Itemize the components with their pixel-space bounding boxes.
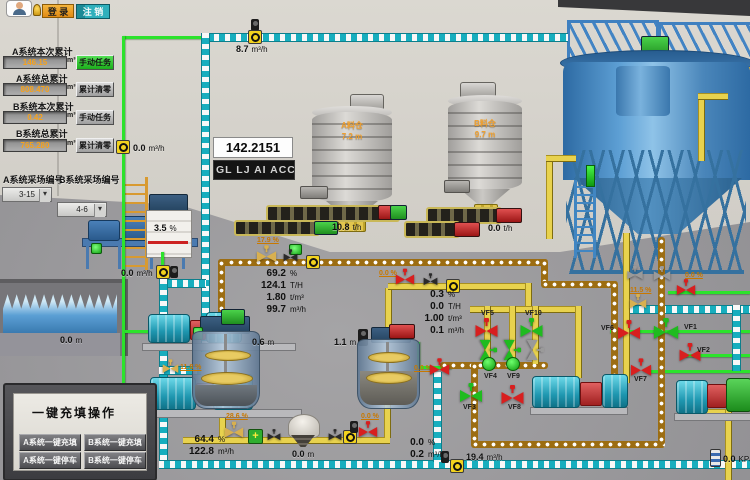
silo-b-level-unit: m xyxy=(488,130,495,139)
discharge-b-conc-unit: % xyxy=(428,438,435,447)
a-concentration-unit: % xyxy=(290,269,297,278)
a-flow-unit: m³/h xyxy=(290,305,306,314)
conveyor-b-value: 0.0 xyxy=(488,223,501,233)
vf10-valve[interactable] xyxy=(519,318,544,338)
screw-conveyor-b2 xyxy=(404,221,460,238)
mix2-out-valve[interactable] xyxy=(358,421,378,438)
pipe-yellow-mix2-out xyxy=(384,404,391,438)
mix2-out-valve-pct: 0.0 % xyxy=(361,413,379,420)
block-a-row1: 69.2% xyxy=(250,268,306,280)
b-flow: 0.1 xyxy=(408,325,444,336)
top-flowmeter-icon xyxy=(248,30,262,44)
b-total-unit: m³ xyxy=(67,140,76,147)
top-flow-value: 8.7 xyxy=(236,44,249,54)
mix-tank-1 xyxy=(192,331,260,409)
hopper-level-value: 0.0 xyxy=(292,449,305,459)
manual-valve-6[interactable] xyxy=(652,266,672,281)
mix2-feed-valve[interactable] xyxy=(395,268,415,286)
pipe-yellow-right-top xyxy=(698,93,728,100)
pipe-cyan-left-riser xyxy=(201,33,210,352)
a-batch-field[interactable]: 146.15 xyxy=(3,56,67,69)
discharge-b-row2: 0.2m³/h xyxy=(388,449,444,461)
vf2-label: VF2 xyxy=(697,347,710,354)
discharge-b-row1: 0.0% xyxy=(388,437,444,449)
mix2-propeller-lower xyxy=(366,372,412,384)
marquee-display: GL LJ AI ACC xyxy=(213,160,295,180)
vf5-label: VF5 xyxy=(481,310,494,317)
b-tonnage: 0.0 xyxy=(408,301,444,312)
bottom-flow-label: 19.4m³/h xyxy=(466,452,503,462)
silo-a-label: A料仓 7.2 m xyxy=(318,120,386,142)
vf9-label: VF9 xyxy=(507,373,520,380)
manual-valve-1[interactable] xyxy=(283,249,298,262)
conveyor-a-unit: t/h xyxy=(353,223,362,232)
wall-flow-value: 0.0 xyxy=(133,143,146,153)
silo-b-level: 9.7 m xyxy=(452,129,518,140)
stope-a-label: A系统采场编号 xyxy=(3,173,64,186)
thickener-center-column xyxy=(616,66,670,116)
a-density-unit: t/m³ xyxy=(290,293,304,302)
stope-a-select[interactable]: 3-15 xyxy=(2,187,52,202)
silo-b-label: B料仓 9.7 m xyxy=(452,118,518,140)
thickener-valve[interactable] xyxy=(629,294,647,309)
flush-valve[interactable] xyxy=(162,358,179,375)
b-total-field[interactable]: 765.280 xyxy=(3,139,67,152)
hmi-screen: 3.5% A料仓 7.2 m B料仓 9.7 m xyxy=(0,0,750,480)
vf4-flange xyxy=(482,357,496,371)
additive-tank-level-value: 3.5 xyxy=(154,223,167,233)
station-flowmeter-icon xyxy=(156,265,170,279)
pool-level-unit: m xyxy=(76,336,83,345)
silo-a-level-transmitter xyxy=(300,186,328,199)
pool-level-value: 0.0 xyxy=(60,335,73,345)
pipe-green-left-riser xyxy=(122,36,125,396)
station-flow-value: 0.0 xyxy=(121,268,134,278)
conveyor-a-value: 10.8 xyxy=(332,222,350,232)
block-a-row4: 99.7m³/h xyxy=(250,304,306,316)
vf6-label: VF6 xyxy=(601,325,614,332)
a-clear-total-button[interactable]: 累计清零 xyxy=(76,82,114,97)
tank-level-line xyxy=(148,241,188,244)
fill-hopper-dome xyxy=(288,414,320,438)
feed-valve-pct: 17.9 % xyxy=(257,237,279,244)
silo-b-name: B料仓 xyxy=(452,118,518,129)
density-block-a: 69.2% 124.1T/H 1.80t/m³ 99.7m³/h xyxy=(250,268,306,316)
a-tonnage-unit: T/H xyxy=(290,281,303,290)
b-batch-field[interactable]: 0.42 xyxy=(3,111,67,124)
login-button[interactable]: 登 录 xyxy=(42,4,74,18)
block-b-row1: 0.3% xyxy=(408,289,464,301)
wall-corner xyxy=(57,0,59,196)
vf7-label: VF7 xyxy=(634,376,647,383)
vf4-label: VF4 xyxy=(484,373,497,380)
conveyor-a1-motor xyxy=(390,205,407,220)
ceiling-strip xyxy=(0,0,750,20)
a-total-unit: m³ xyxy=(67,84,76,91)
pump-run-lamp xyxy=(91,243,102,254)
silo-a-level-unit: m xyxy=(355,132,362,141)
block-b-row2: 0.0T/H xyxy=(408,301,464,313)
pressure-gauge-icon xyxy=(710,449,721,467)
pressure-label: 0.0KPa xyxy=(723,454,750,464)
pipe-yellow-pump-suction xyxy=(575,306,582,378)
silo-a-level: 7.2 m xyxy=(318,131,386,142)
mix1-level-unit: m xyxy=(268,338,275,347)
mix1-propeller-upper xyxy=(205,350,251,361)
discharge-a-flow-unit: m³/h xyxy=(218,447,234,456)
screw-conveyor-a2 xyxy=(234,220,320,236)
flush2-valve[interactable] xyxy=(429,358,450,376)
vf3-label: VF3 xyxy=(463,404,476,411)
a-tonnage: 124.1 xyxy=(250,280,286,291)
thickener-ladder xyxy=(574,180,596,258)
pipe-yellow-right-riser xyxy=(698,93,705,161)
bottom-flow-unit: m³/h xyxy=(487,453,503,462)
stope-b-label: B系统采场编号 xyxy=(59,173,120,186)
b-batch-unit: m³ xyxy=(67,112,76,119)
pump3-motor xyxy=(532,376,580,408)
mix1-propeller-lower xyxy=(201,372,253,385)
additive-tank-level-unit: % xyxy=(170,224,177,233)
silo-b-level-transmitter xyxy=(444,180,470,193)
feed-valve[interactable] xyxy=(256,245,277,263)
silo-a-level-value: 7.2 xyxy=(342,132,353,141)
pipe-cyan-right-drop xyxy=(732,305,741,371)
discharge-flowmeter-icon: + xyxy=(248,429,263,444)
bottom-flow-value: 19.4 xyxy=(466,452,484,462)
station-flow-label: 0.0m³/h xyxy=(121,268,153,278)
hopper-level-unit: m xyxy=(308,450,315,459)
thickener-valve-pct: 11.5 % xyxy=(630,287,651,294)
a-total-field[interactable]: 808.470 xyxy=(3,83,67,96)
platform-leg xyxy=(118,245,121,269)
silo-b-level-value: 9.7 xyxy=(475,130,486,139)
b-density-unit: t/m³ xyxy=(448,314,462,323)
station-flow-transmitter xyxy=(170,266,178,278)
conveyor-b2-motor xyxy=(454,222,480,237)
discharge-b-concentration: 0.0 xyxy=(388,437,424,448)
wall-flow-label: 0.0m³/h xyxy=(133,143,165,153)
pump3-base xyxy=(530,407,628,415)
pressure-unit: KPa xyxy=(739,455,750,464)
one-key-panel: 一键充填操作 A系统一键充填 B系统一键充填 A系统一键停车 B系统一键停车 xyxy=(3,383,157,480)
b-manual-task-button[interactable]: 手动任务 xyxy=(76,110,114,125)
vf10-label: VF10 xyxy=(525,310,542,317)
additive-tank: 3.5% xyxy=(146,210,192,258)
manual-valve-3[interactable] xyxy=(328,429,342,441)
avatar[interactable] xyxy=(6,0,32,17)
silo-b-body xyxy=(448,101,522,190)
conveyor-b-flow: 0.0t/h xyxy=(488,223,512,233)
additive-tank-level: 3.5% xyxy=(154,223,177,233)
conveyor-b-unit: t/h xyxy=(504,224,513,233)
pump2-base xyxy=(142,409,302,418)
mix1-level-label: 0.6m xyxy=(252,337,274,347)
conveyor-a-flow: 10.8t/h xyxy=(332,222,361,232)
a-one-key-fill-button[interactable]: A系统一键充填 xyxy=(19,434,81,451)
b-density: 1.00 xyxy=(408,313,444,324)
vf8-valve[interactable] xyxy=(500,385,525,405)
conveyor-b1-motor xyxy=(496,208,522,223)
vf8-label: VF8 xyxy=(508,404,521,411)
discharge-a-row2: 122.8m³/h xyxy=(178,446,234,458)
pool-level-label: 0.0m xyxy=(60,335,82,345)
pump1-motor xyxy=(148,314,190,343)
accumulator-display: 142.2151 xyxy=(213,137,293,158)
mix2-level-unit: m xyxy=(350,338,357,347)
b-one-key-fill-button[interactable]: B系统一键充填 xyxy=(84,434,146,451)
manual-valve-2[interactable] xyxy=(267,429,281,441)
a-one-key-stop-button[interactable]: A系统一键停车 xyxy=(19,452,81,469)
feed-pump-1 xyxy=(88,220,120,241)
b-concentration: 0.3 xyxy=(408,289,444,300)
pipe-yellow-thickener-feed xyxy=(546,155,553,239)
mix1-liquid xyxy=(195,385,257,406)
block-a-row3: 1.80t/m³ xyxy=(250,292,306,304)
pressure-value: 0.0 xyxy=(723,454,736,464)
pipe-slurry-mid xyxy=(541,281,618,288)
wall-flowmeter-icon xyxy=(116,140,130,154)
pump4-casing xyxy=(676,380,708,414)
b-flow-unit: m³/h xyxy=(448,326,464,335)
a-concentration: 69.2 xyxy=(250,268,286,279)
b-clear-total-button[interactable]: 累计清零 xyxy=(76,138,114,153)
discharge-a-conc-unit: % xyxy=(218,435,225,444)
key-icon xyxy=(33,4,41,16)
pump4-motor xyxy=(726,378,750,412)
vf1-valve[interactable] xyxy=(650,318,682,340)
discharge-block-a: 64.4% 122.8m³/h xyxy=(178,434,234,458)
discharge-a-flow: 122.8 xyxy=(178,446,214,457)
standby-valve[interactable] xyxy=(524,339,546,361)
discharge-b-flow-unit: m³/h xyxy=(428,450,444,459)
pump4-coupling xyxy=(707,384,727,408)
b-one-key-stop-button[interactable]: B系统一键停车 xyxy=(84,452,146,469)
thickener-level-bar xyxy=(586,165,595,187)
hopper-level-label: 0.0m xyxy=(292,449,314,459)
a-density: 1.80 xyxy=(250,292,286,303)
vf5-valve[interactable] xyxy=(474,318,499,338)
manual-valve-5[interactable] xyxy=(626,266,644,280)
silo-a-name: A料仓 xyxy=(318,120,386,131)
pipe-slurry-bottom xyxy=(471,441,665,448)
mix1-agitator-motor xyxy=(221,309,245,325)
ladder xyxy=(122,177,148,270)
vf3-valve[interactable] xyxy=(459,383,483,403)
thickener-out-valve-pct: 0.0 % xyxy=(685,272,703,279)
block-a-row2: 124.1T/H xyxy=(250,280,306,292)
top-flow-label: 8.7m³/h xyxy=(236,44,268,54)
vf6-valve[interactable] xyxy=(615,320,643,340)
block-b-row4: 0.1m³/h xyxy=(408,325,464,337)
vf1-label: VF1 xyxy=(684,324,697,331)
wall-flow-unit: m³/h xyxy=(149,144,165,153)
pump3-casing xyxy=(602,374,628,408)
pump4-base xyxy=(674,413,750,421)
a-manual-task-button[interactable]: 手动任务 xyxy=(76,55,114,70)
vf7-valve[interactable] xyxy=(630,358,652,377)
thickener-out-valve[interactable] xyxy=(676,279,696,296)
mix2-propeller-upper xyxy=(368,352,410,363)
mix2-level-value: 1.1 xyxy=(334,337,347,347)
a-flow: 99.7 xyxy=(250,304,286,315)
discharge-valve-pct: 28.6 % xyxy=(226,413,248,420)
mix1-level-value: 0.6 xyxy=(252,337,265,347)
pipe-green-top xyxy=(122,36,205,39)
manual-valve-4[interactable] xyxy=(423,273,438,286)
a-batch-unit: m³ xyxy=(67,57,76,64)
mix-tank-2 xyxy=(357,339,420,409)
density-block-b: 0.3% 0.0T/H 1.00t/m³ 0.1m³/h xyxy=(408,289,464,337)
platform-leg xyxy=(86,245,89,269)
pipe-yellow-feed-stub xyxy=(546,155,576,162)
logout-button[interactable]: 注 销 xyxy=(76,4,110,19)
vf9-flange xyxy=(506,357,520,371)
mix2-level-label: 1.1m xyxy=(334,337,356,347)
stope-b-select[interactable]: 4-6 xyxy=(57,202,107,217)
one-key-panel-inner: 一键充填操作 A系统一键充填 B系统一键充填 A系统一键停车 B系统一键停车 xyxy=(13,393,147,471)
station-flow-unit: m³/h xyxy=(137,269,153,278)
block-b-row3: 1.00t/m³ xyxy=(408,313,464,325)
discharge-a-concentration: 64.4 xyxy=(178,434,214,445)
pool-water xyxy=(3,289,117,333)
discharge-block-b: 0.0% 0.2m³/h xyxy=(388,437,444,461)
b-tonnage-unit: T/H xyxy=(448,302,461,311)
top-flow-unit: m³/h xyxy=(252,45,268,54)
discharge-b-flow: 0.2 xyxy=(388,449,424,460)
one-key-title: 一键充填操作 xyxy=(32,404,116,421)
flush-valve-pct: 11.8 % xyxy=(180,364,201,371)
bottom-flowmeter-icon xyxy=(450,459,464,473)
discharge-transmitter xyxy=(350,421,358,433)
b-concentration-unit: % xyxy=(448,290,455,299)
slurry-flowmeter-icon xyxy=(306,255,320,269)
discharge-a-row1: 64.4% xyxy=(178,434,234,446)
pump3-coupling xyxy=(580,382,602,406)
